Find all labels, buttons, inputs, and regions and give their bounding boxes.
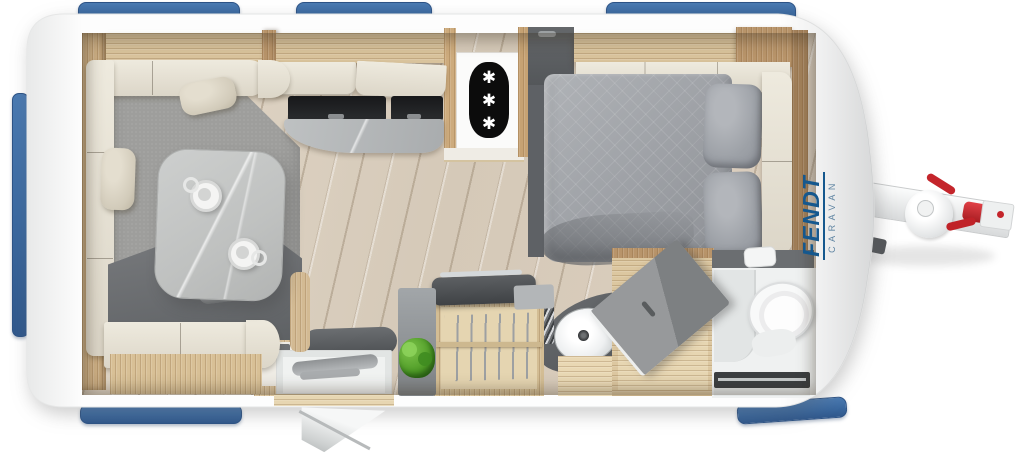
basin-drain-icon: [578, 330, 589, 341]
sofa-seam: [152, 61, 153, 95]
dish-rack-wires: [445, 312, 535, 381]
fridge-icon: ✱ ✱ ✱: [469, 62, 509, 138]
snowflake-asterisk-icon: ✱: [469, 112, 509, 135]
bed-head-cabinet-latch: [538, 31, 556, 37]
lounge-top-shelf: [106, 33, 262, 63]
sofa-seam: [87, 258, 113, 259]
brand-subtitle: CARAVAN: [827, 179, 837, 253]
brand-logo: FENDT CARAVAN: [794, 158, 842, 274]
fridge-front-strip: [444, 148, 524, 162]
snowflake-asterisk-icon: ✱: [469, 89, 509, 112]
lounge-armrest-wood: [290, 272, 310, 352]
brand-name: FENDT: [800, 175, 822, 257]
fridge-column-left: [444, 28, 456, 154]
brand-underline: [823, 172, 825, 260]
plant-leaf: [418, 352, 432, 366]
kitchen-top-shelf: [276, 33, 444, 63]
bed-base: [528, 85, 544, 257]
front-corner-cabinet-wood: [736, 27, 792, 67]
entry-sill: [274, 394, 394, 406]
bed-side-cabinets: [762, 72, 792, 254]
lounge-pillow-left: [100, 147, 136, 210]
left-rim-shading: [27, 14, 82, 407]
kitchen-unit-rail: [436, 342, 542, 347]
coffee-cup-handle: [183, 177, 199, 193]
shower-door-rail: [718, 378, 806, 381]
fridge-column-right: [518, 27, 528, 157]
bed-top-shelf: [574, 33, 736, 62]
dinette-table: [153, 148, 286, 302]
bed-pillow: [703, 83, 764, 169]
bed-pillow: [703, 171, 764, 257]
toilet-roll-holder: [743, 246, 776, 268]
snowflake-asterisk-icon: ✱: [469, 66, 509, 89]
caravan-floorplan: ✱ ✱ ✱: [0, 0, 1024, 475]
coffee-cup-handle: [251, 250, 267, 266]
coffee-cup-inner: [236, 246, 249, 259]
plant-leaf: [402, 342, 417, 357]
coffee-cup-inner: [198, 188, 211, 201]
bathroom-floor-strip: [714, 388, 810, 396]
lounge-bench-front-wood: [110, 354, 262, 394]
kitchen-unit-side-counter: [514, 284, 555, 309]
kitchen-overhead-locker-right: [355, 61, 447, 101]
